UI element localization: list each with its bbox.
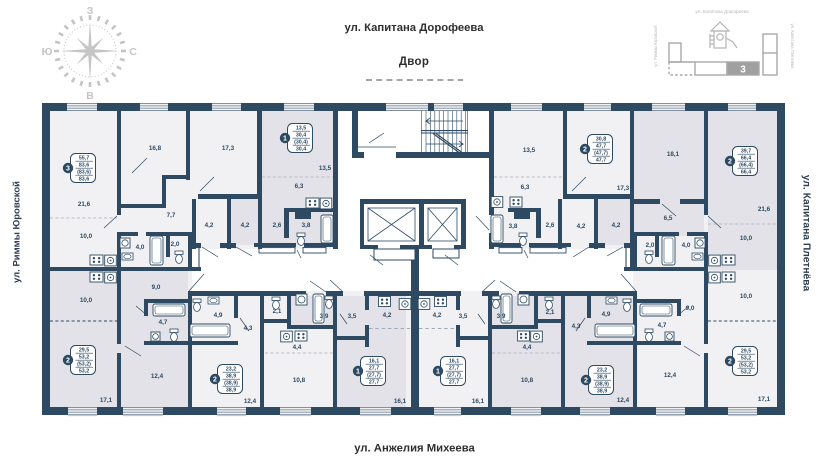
- svg-text:16,8: 16,8: [149, 145, 162, 152]
- svg-text:4,4: 4,4: [293, 344, 302, 351]
- svg-text:17,1: 17,1: [758, 396, 771, 403]
- svg-text:3: 3: [740, 65, 746, 76]
- svg-text:12,4: 12,4: [617, 397, 630, 404]
- svg-text:ул. Анжелия Михеева: ул. Анжелия Михеева: [354, 443, 475, 455]
- svg-text:Ю: Ю: [42, 46, 53, 58]
- svg-text:27,7: 27,7: [369, 380, 379, 386]
- svg-text:З: З: [87, 5, 94, 17]
- svg-text:38,9: 38,9: [597, 389, 607, 395]
- svg-text:4,7: 4,7: [159, 319, 168, 326]
- svg-text:(38,9): (38,9): [595, 382, 609, 388]
- svg-text:38,9: 38,9: [226, 374, 236, 380]
- svg-text:30,4: 30,4: [296, 147, 306, 153]
- svg-text:2: 2: [728, 358, 732, 365]
- svg-text:2: 2: [66, 357, 70, 364]
- svg-text:47,7: 47,7: [596, 144, 606, 150]
- svg-text:4,2: 4,2: [241, 222, 250, 229]
- svg-text:10,0: 10,0: [740, 293, 753, 300]
- svg-text:16,1: 16,1: [449, 359, 459, 365]
- svg-text:(53,2): (53,2): [77, 362, 91, 368]
- svg-text:4,2: 4,2: [577, 223, 586, 230]
- svg-text:4,2: 4,2: [383, 312, 392, 319]
- svg-text:1: 1: [283, 135, 287, 142]
- svg-text:13,5: 13,5: [523, 147, 536, 154]
- svg-text:29,5: 29,5: [741, 349, 751, 355]
- svg-text:27,7: 27,7: [449, 380, 459, 386]
- svg-text:39,7: 39,7: [741, 149, 751, 155]
- svg-text:47,7: 47,7: [596, 158, 606, 164]
- svg-text:3,8: 3,8: [509, 223, 518, 230]
- svg-text:18,1: 18,1: [667, 151, 680, 158]
- svg-text:23,2: 23,2: [597, 368, 607, 374]
- svg-text:83,6: 83,6: [79, 163, 89, 169]
- svg-text:6,3: 6,3: [521, 184, 530, 191]
- svg-text:4,4: 4,4: [523, 344, 532, 351]
- svg-text:53,2: 53,2: [741, 356, 751, 362]
- svg-text:ул. Капитана Дорофеева: ул. Капитана Дорофеева: [345, 22, 485, 34]
- svg-text:4,3: 4,3: [244, 325, 253, 332]
- svg-text:38,9: 38,9: [597, 375, 607, 381]
- svg-text:10,0: 10,0: [740, 235, 753, 242]
- svg-text:(83,6): (83,6): [77, 170, 91, 176]
- svg-text:10,8: 10,8: [293, 377, 306, 384]
- svg-text:38,9: 38,9: [226, 388, 236, 394]
- svg-text:С: С: [129, 46, 137, 58]
- svg-text:(38,9): (38,9): [224, 381, 238, 387]
- svg-text:2,0: 2,0: [646, 242, 655, 249]
- svg-text:ул. Капитана Плетнёва: ул. Капитана Плетнёва: [790, 24, 795, 70]
- svg-text:Двор: Двор: [399, 56, 429, 68]
- svg-text:21,6: 21,6: [78, 201, 91, 208]
- svg-text:2: 2: [584, 377, 588, 384]
- svg-text:30,4: 30,4: [296, 133, 306, 139]
- svg-text:53,2: 53,2: [79, 369, 89, 375]
- svg-text:16,1: 16,1: [394, 398, 407, 405]
- svg-text:6,5: 6,5: [664, 215, 673, 222]
- svg-text:3,9: 3,9: [497, 313, 506, 320]
- svg-text:55,7: 55,7: [79, 156, 89, 162]
- svg-text:2,1: 2,1: [546, 309, 555, 316]
- svg-text:10,0: 10,0: [80, 297, 93, 304]
- svg-text:2,0: 2,0: [171, 241, 180, 248]
- svg-text:4,0: 4,0: [136, 244, 145, 251]
- svg-text:27,7: 27,7: [449, 366, 459, 372]
- svg-text:(53,2): (53,2): [739, 363, 753, 369]
- svg-text:4,2: 4,2: [612, 222, 621, 229]
- svg-text:53,2: 53,2: [79, 355, 89, 361]
- svg-text:13,5: 13,5: [296, 126, 306, 132]
- svg-text:23,2: 23,2: [226, 367, 236, 373]
- svg-text:2,6: 2,6: [546, 222, 555, 229]
- svg-text:ул. Риммы Юровской: ул. Риммы Юровской: [653, 25, 658, 67]
- svg-text:2,6: 2,6: [273, 222, 282, 229]
- svg-text:2: 2: [213, 376, 217, 383]
- svg-text:(47,7): (47,7): [594, 151, 608, 157]
- svg-text:10,8: 10,8: [521, 377, 534, 384]
- svg-text:30,8: 30,8: [596, 137, 606, 143]
- svg-text:10,0: 10,0: [80, 233, 93, 240]
- svg-text:2: 2: [583, 146, 587, 153]
- svg-text:4,2: 4,2: [433, 312, 442, 319]
- svg-text:1: 1: [356, 368, 360, 375]
- svg-text:66,4: 66,4: [741, 156, 751, 162]
- svg-text:2: 2: [728, 158, 732, 165]
- svg-text:3,5: 3,5: [459, 313, 468, 320]
- svg-text:4,9: 4,9: [602, 311, 611, 318]
- svg-text:7,7: 7,7: [167, 212, 176, 219]
- svg-text:12,4: 12,4: [151, 373, 164, 380]
- svg-text:53,2: 53,2: [741, 370, 751, 376]
- svg-text:9,0: 9,0: [686, 305, 695, 312]
- svg-text:83,6: 83,6: [79, 177, 89, 183]
- svg-text:(66,4): (66,4): [739, 163, 753, 169]
- svg-text:3,9: 3,9: [320, 313, 329, 320]
- svg-text:4,0: 4,0: [682, 242, 691, 249]
- svg-text:16,1: 16,1: [472, 398, 485, 405]
- svg-text:12,4: 12,4: [244, 398, 257, 405]
- svg-text:(27,7): (27,7): [447, 373, 461, 379]
- svg-text:17,1: 17,1: [100, 397, 113, 404]
- svg-text:9,0: 9,0: [152, 284, 161, 291]
- svg-text:ул. Капитана Плетнёва: ул. Капитана Плетнёва: [801, 175, 812, 292]
- svg-text:ул. Капитана Дорофеева: ул. Капитана Дорофеева: [695, 9, 749, 14]
- svg-text:3,8: 3,8: [302, 222, 311, 229]
- svg-text:(27,7): (27,7): [367, 373, 381, 379]
- svg-text:13,5: 13,5: [319, 165, 332, 172]
- svg-text:4,2: 4,2: [205, 222, 214, 229]
- svg-text:3,5: 3,5: [348, 313, 357, 320]
- svg-text:В: В: [86, 90, 94, 102]
- svg-text:1: 1: [436, 368, 440, 375]
- svg-text:17,3: 17,3: [617, 185, 630, 192]
- svg-text:66,4: 66,4: [741, 170, 751, 176]
- svg-text:4,7: 4,7: [658, 322, 667, 329]
- svg-text:16,1: 16,1: [369, 359, 379, 365]
- svg-text:4,3: 4,3: [572, 323, 581, 330]
- svg-text:17,3: 17,3: [222, 145, 235, 152]
- svg-text:12,4: 12,4: [664, 372, 677, 379]
- svg-text:ул. Риммы Юровской: ул. Риммы Юровской: [12, 181, 23, 283]
- svg-text:6,3: 6,3: [295, 183, 304, 190]
- svg-text:4,9: 4,9: [214, 312, 223, 319]
- svg-text:3: 3: [66, 165, 70, 172]
- svg-text:29,5: 29,5: [79, 348, 89, 354]
- svg-text:(30,4): (30,4): [294, 140, 308, 146]
- svg-text:27,7: 27,7: [369, 366, 379, 372]
- svg-text:2,1: 2,1: [273, 308, 282, 315]
- svg-text:21,6: 21,6: [758, 206, 771, 213]
